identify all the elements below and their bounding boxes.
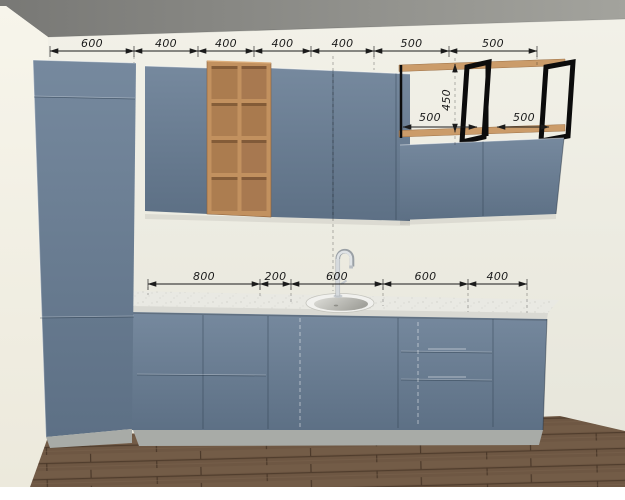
wall-cabinet-doors-400-b[interactable] xyxy=(271,68,410,221)
wall-cabinet-door-400-a[interactable] xyxy=(145,66,208,214)
dimension-label: 400 xyxy=(215,37,237,50)
drawer-handle xyxy=(428,376,466,378)
dimension-label: 600 xyxy=(326,270,348,283)
dimension-label: 400 xyxy=(487,270,509,283)
upper-wall-cabinets xyxy=(145,61,410,226)
open-shelf-unit[interactable] xyxy=(207,61,271,217)
shelf-compartment xyxy=(242,140,267,173)
plinth xyxy=(133,430,543,446)
faucet-spout xyxy=(349,266,353,269)
dimension-label: 500 xyxy=(419,111,441,124)
sink-bowl xyxy=(314,297,368,311)
dimension-label: 600 xyxy=(415,270,437,283)
shelf-shadow xyxy=(212,140,238,143)
shelf-shadow xyxy=(212,66,238,69)
dimension-label: 450 xyxy=(440,89,453,111)
dimension-label: 800 xyxy=(193,270,215,283)
drawer-handle xyxy=(428,348,466,350)
base-cabinets xyxy=(131,312,547,446)
dimension-label: 200 xyxy=(265,270,287,283)
tall-cabinet[interactable] xyxy=(33,60,136,448)
shelf-compartment xyxy=(212,177,238,211)
dimension-label: 400 xyxy=(155,37,177,50)
sink-drain xyxy=(334,305,338,307)
base-cabinet-run[interactable] xyxy=(131,312,547,430)
shelf-shadow xyxy=(212,103,238,106)
dimension-label: 500 xyxy=(401,37,423,50)
dimension-label: 500 xyxy=(513,111,535,124)
dimension-label: 500 xyxy=(482,37,504,50)
shelf-compartment xyxy=(242,103,267,136)
shelf-compartment xyxy=(242,177,267,211)
shelf-shadow xyxy=(242,177,267,180)
shelf-shadow xyxy=(212,177,238,180)
kitchen-elevation-canvas: 600 400 400 400 400 500 500 500 500 450 … xyxy=(0,0,625,500)
shelf-compartment xyxy=(212,103,238,136)
dimension-label: 600 xyxy=(81,37,103,50)
shelf-compartment xyxy=(242,66,267,99)
shelf-compartment xyxy=(212,66,238,99)
shelf-shadow xyxy=(242,66,267,69)
shelf-shadow xyxy=(242,103,267,106)
wall-cabinet-doors-500[interactable] xyxy=(400,138,564,220)
dimension-label: 400 xyxy=(272,37,294,50)
tall-cabinet-front[interactable] xyxy=(33,60,136,437)
kitchen-planner-viewport: 600 400 400 400 400 500 500 500 500 450 … xyxy=(0,0,625,500)
shelf-compartment xyxy=(212,140,238,173)
dimension-label: 400 xyxy=(332,37,354,50)
shelf-shadow xyxy=(242,140,267,143)
